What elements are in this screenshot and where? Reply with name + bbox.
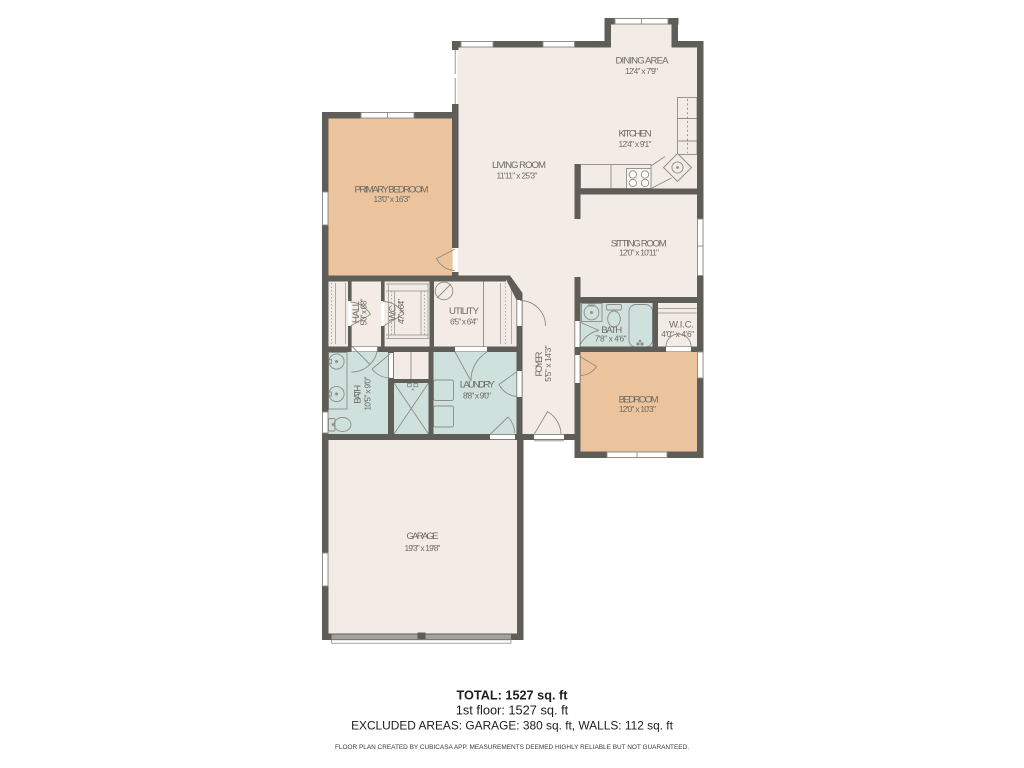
svg-text:6'5" x 6'4": 6'5" x 6'4": [450, 317, 478, 327]
svg-text:12'4" x 9'1": 12'4" x 9'1": [619, 139, 652, 149]
svg-text:5'0" x 6'8": 5'0" x 6'8": [359, 298, 369, 325]
svg-text:4'7" x 6'4": 4'7" x 6'4": [396, 299, 406, 324]
svg-text:KITCHEN: KITCHEN: [619, 129, 652, 140]
svg-text:12'4" x 7'9": 12'4" x 7'9": [625, 66, 658, 76]
svg-text:7'8" x 4'6": 7'8" x 4'6": [595, 334, 627, 344]
svg-text:4'0" x 4'6": 4'0" x 4'6": [661, 329, 694, 339]
svg-text:UTILITY: UTILITY: [449, 306, 480, 317]
svg-text:LAUNDRY: LAUNDRY: [460, 380, 496, 391]
svg-text:5'5" x 14'3": 5'5" x 14'3": [543, 345, 553, 382]
svg-text:FLOOR PLAN CREATED BY CUBICASA: FLOOR PLAN CREATED BY CUBICASA APP. MEAS…: [335, 744, 689, 751]
svg-text:12'0" x 10'11": 12'0" x 10'11": [619, 248, 659, 258]
svg-text:GARAGE: GARAGE: [407, 531, 439, 542]
svg-text:12'0" x 10'3": 12'0" x 10'3": [619, 404, 656, 414]
svg-text:10'5" x 9'0": 10'5" x 9'0": [363, 377, 373, 411]
svg-text:EXCLUDED AREAS: GARAGE: 380 sq: EXCLUDED AREAS: GARAGE: 380 sq. ft, WALL…: [351, 719, 674, 733]
svg-text:11'11" x 25'3": 11'11" x 25'3": [497, 171, 538, 181]
svg-text:TOTAL: 1527 sq. ft: TOTAL: 1527 sq. ft: [457, 689, 569, 703]
svg-text:19'3" x 19'8": 19'3" x 19'8": [405, 543, 441, 553]
svg-text:LIVING ROOM: LIVING ROOM: [492, 160, 546, 171]
svg-text:13'0" x 16'3": 13'0" x 16'3": [374, 194, 411, 204]
svg-text:1st floor: 1527 sq. ft: 1st floor: 1527 sq. ft: [456, 703, 569, 718]
svg-text:DINING AREA: DINING AREA: [616, 56, 670, 67]
svg-text:8'8" x 9'0": 8'8" x 9'0": [463, 391, 491, 401]
